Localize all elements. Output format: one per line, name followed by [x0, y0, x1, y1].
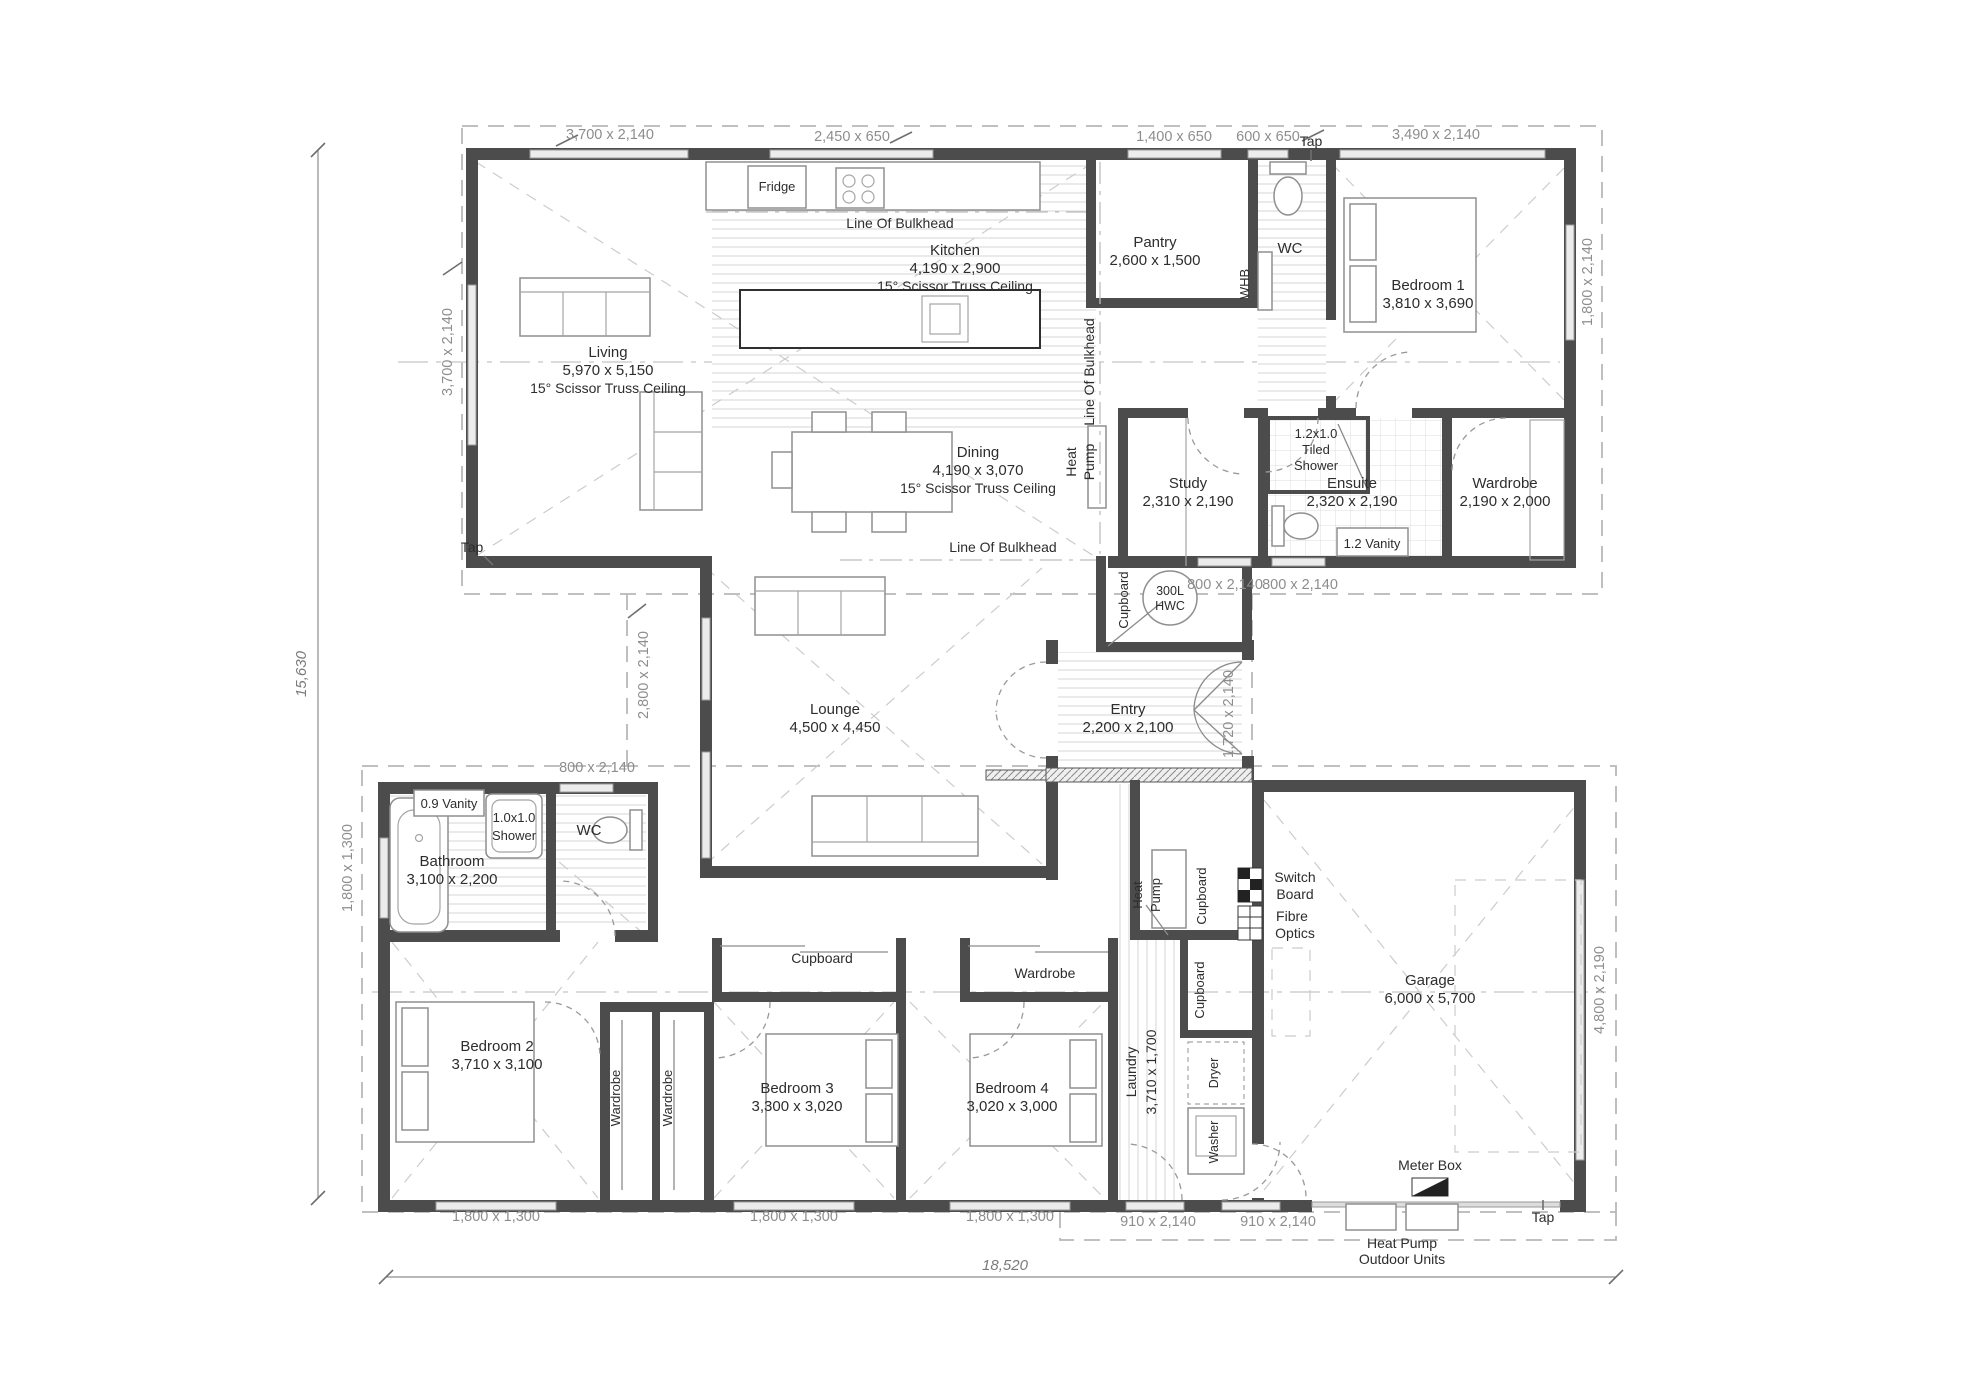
- line-of-bulkhead-label: Line Of Bulkhead: [949, 539, 1056, 555]
- floor-plan-drawing: Living 5,970 x 5,150 15° Scissor Truss C…: [0, 0, 1980, 1400]
- tap-label: Tap: [461, 539, 484, 555]
- dim-overall-height: 15,630: [293, 650, 310, 697]
- whb-label: WHB: [1237, 269, 1252, 299]
- dim-left-bathroom: 1,800 x 1,300: [340, 824, 356, 912]
- tiled-shower-line2: Tiled: [1302, 442, 1330, 457]
- bathroom-label: Bathroom: [419, 853, 484, 870]
- kitchen-island: [740, 290, 1040, 348]
- dim-door-800: 800 x 2,140: [1187, 577, 1263, 593]
- outdoor-units-line2: Outdoor Units: [1359, 1251, 1445, 1267]
- bedroom3-dims: 3,300 x 3,020: [752, 1098, 843, 1115]
- living-dims: 5,970 x 5,150: [563, 362, 654, 379]
- wc-top-label: WC: [1278, 240, 1303, 257]
- dim-bottom-garage-door: 910 x 2,140: [1240, 1214, 1316, 1230]
- tap-label: Tap: [1300, 133, 1323, 149]
- dim-top-bed1: 3,490 x 2,140: [1392, 127, 1480, 143]
- laundry-dims: 3,710 x 1,700: [1143, 1029, 1159, 1114]
- wardrobe-small-label: Wardrobe: [660, 1070, 675, 1127]
- bedroom3-label: Bedroom 3: [760, 1080, 833, 1097]
- dim-right-bed1: 1,800 x 2,140: [1580, 238, 1596, 326]
- sofa: [640, 392, 702, 510]
- switch-board-line2: Board: [1276, 886, 1313, 902]
- dining-label: Dining: [957, 444, 1000, 461]
- bedroom4-label: Bedroom 4: [975, 1080, 1048, 1097]
- heatpump-cupboard-label: Cupboard: [1194, 867, 1209, 924]
- dim-bottom-bed2: 1,800 x 1,300: [452, 1209, 540, 1225]
- garage-label: Garage: [1405, 972, 1455, 989]
- outdoor-unit: [1346, 1204, 1396, 1230]
- meter-box-label: Meter Box: [1398, 1157, 1462, 1173]
- dim-entry-right: 1,720 x 2,140: [1221, 670, 1237, 758]
- heat-pump-label-line2: Pump: [1081, 444, 1097, 481]
- wardrobe-small-label: Wardrobe: [608, 1070, 623, 1127]
- floor-plan-canvas: Living 5,970 x 5,150 15° Scissor Truss C…: [0, 0, 1980, 1400]
- ensuite-vanity-label: 1.2 Vanity: [1344, 536, 1401, 551]
- dining-table: [792, 432, 952, 512]
- garage-clearance: [1455, 880, 1581, 1152]
- kitchen-label: Kitchen: [930, 242, 980, 259]
- whb-basin: [1258, 252, 1272, 310]
- dining-dims: 4,190 x 3,070: [933, 462, 1024, 479]
- study-dims: 2,310 x 2,190: [1143, 493, 1234, 510]
- shower-line2: Shower: [492, 828, 537, 843]
- dim-top-living: 3,700 x 2,140: [566, 127, 654, 143]
- dim-top-pantry: 1,400 x 650: [1136, 129, 1212, 145]
- kitchen-dims: 4,190 x 2,900: [910, 260, 1001, 277]
- tiled-shower-line1: 1.2x1.0: [1295, 426, 1338, 441]
- heatpump-room-line2: Pump: [1148, 878, 1163, 912]
- wardrobe-bed4-label: Wardrobe: [1015, 965, 1076, 981]
- fridge-label: Fridge: [759, 179, 796, 194]
- line-of-bulkhead-label: Line Of Bulkhead: [1081, 318, 1097, 425]
- cupboard-label: Cupboard: [791, 950, 853, 966]
- sofa: [520, 278, 650, 336]
- shower-box: [486, 794, 542, 858]
- outdoor-unit: [1406, 1204, 1458, 1230]
- study-label: Study: [1169, 475, 1208, 492]
- dim-bottom-bed3: 1,800 x 1,300: [750, 1209, 838, 1225]
- pantry-dims: 2,600 x 1,500: [1110, 252, 1201, 269]
- hwc-cupboard-label: Cupboard: [1116, 571, 1131, 628]
- fibre-optics-line2: Optics: [1275, 925, 1315, 941]
- laundry-cupboard-label: Cupboard: [1192, 961, 1207, 1018]
- laundry-label: Laundry: [1123, 1047, 1139, 1098]
- kitchen-note: 15° Scissor Truss Ceiling: [877, 278, 1033, 294]
- ensuite-label: Ensuite: [1327, 475, 1377, 492]
- entry-dims: 2,200 x 2,100: [1083, 719, 1174, 736]
- meter-box-glyph: [1412, 1178, 1448, 1196]
- hwc-line2: HWC: [1155, 599, 1185, 613]
- fibre-optics-line1: Fibre: [1276, 908, 1308, 924]
- hwc-line1: 300L: [1156, 584, 1184, 598]
- dim-bottom-laundry-door: 910 x 2,140: [1120, 1214, 1196, 1230]
- dim-door-800: 800 x 2,140: [1262, 577, 1338, 593]
- shower-line1: 1.0x1.0: [493, 810, 536, 825]
- switch-board-glyph: [1238, 868, 1262, 902]
- washer-label: Washer: [1207, 1121, 1221, 1164]
- wardrobe-master-label: Wardrobe: [1472, 475, 1537, 492]
- tiled-shower-line3: Shower: [1294, 458, 1339, 473]
- dim-left-living: 3,700 x 2,140: [440, 308, 456, 396]
- garage-dims: 6,000 x 5,700: [1385, 990, 1476, 1007]
- dim-lounge-left: 2,800 x 2,140: [636, 631, 652, 719]
- outdoor-units-line1: Heat Pump: [1367, 1235, 1437, 1251]
- sofa: [755, 577, 885, 635]
- bathroom-vanity-label: 0.9 Vanity: [421, 796, 478, 811]
- dim-right-garage: 4,800 x 2,190: [1592, 946, 1608, 1034]
- bedroom1-dims: 3,810 x 3,690: [1383, 295, 1474, 312]
- fibre-optics-glyph: [1238, 906, 1262, 940]
- stove: [836, 168, 884, 208]
- sofa: [812, 796, 978, 856]
- dim-top-kitchen: 2,450 x 650: [814, 129, 890, 145]
- entry-label: Entry: [1110, 701, 1146, 718]
- bedroom2-dims: 3,710 x 3,100: [452, 1056, 543, 1073]
- heatpump-room-line1: Heat: [1130, 881, 1145, 909]
- bedroom4-dims: 3,020 x 3,000: [967, 1098, 1058, 1115]
- bathroom-dims: 3,100 x 2,200: [407, 871, 498, 888]
- heat-pump-label-line1: Heat: [1063, 447, 1079, 477]
- tap-label: Tap: [1532, 1209, 1555, 1225]
- dining-note: 15° Scissor Truss Ceiling: [900, 480, 1056, 496]
- dim-bottom-bed4: 1,800 x 1,300: [966, 1209, 1054, 1225]
- switch-board-line1: Switch: [1274, 869, 1315, 885]
- pantry-label: Pantry: [1133, 234, 1177, 251]
- dim-top-wc: 600 x 650: [1236, 129, 1300, 145]
- lounge-label: Lounge: [810, 701, 860, 718]
- wardrobe-master-dims: 2,190 x 2,000: [1460, 493, 1551, 510]
- dim-door-800: 800 x 2,140: [559, 760, 635, 776]
- living-note: 15° Scissor Truss Ceiling: [530, 380, 686, 396]
- ensuite-dims: 2,320 x 2,190: [1307, 493, 1398, 510]
- lounge-dims: 4,500 x 4,450: [790, 719, 881, 736]
- bedroom1-label: Bedroom 1: [1391, 277, 1464, 294]
- furniture: [390, 150, 1581, 1230]
- wc-bottom-label: WC: [577, 822, 602, 839]
- dryer-label: Dryer: [1207, 1058, 1221, 1089]
- bedroom2-label: Bedroom 2: [460, 1038, 533, 1055]
- living-label: Living: [588, 344, 627, 361]
- line-of-bulkhead-label: Line Of Bulkhead: [846, 215, 953, 231]
- dim-overall-width: 18,520: [982, 1257, 1029, 1274]
